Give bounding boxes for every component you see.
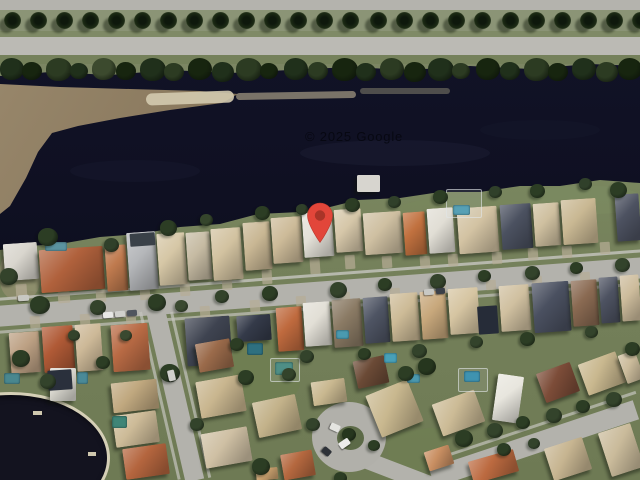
house-roof xyxy=(403,211,428,255)
house-roof xyxy=(242,221,272,271)
tree xyxy=(190,418,204,431)
palm-tree xyxy=(474,12,491,29)
house-roof xyxy=(614,193,640,242)
swimming-pool xyxy=(4,373,20,384)
tree xyxy=(470,336,483,348)
car xyxy=(424,289,434,296)
swimming-pool xyxy=(77,372,88,384)
driveway xyxy=(492,252,503,265)
palm-tree xyxy=(238,12,255,29)
highway-lower-lane xyxy=(0,37,640,56)
house-roof xyxy=(419,290,448,340)
house-roof xyxy=(363,211,404,256)
palm-tree xyxy=(448,12,465,29)
shore-tree xyxy=(164,63,184,81)
tree xyxy=(30,296,50,314)
house-roof xyxy=(499,203,533,250)
house-roof xyxy=(195,338,235,373)
shore-tree xyxy=(116,62,136,80)
tree xyxy=(516,416,530,429)
car xyxy=(103,312,113,319)
driveway xyxy=(382,256,393,269)
tree xyxy=(489,186,502,198)
tree xyxy=(433,190,448,204)
house-roof xyxy=(210,227,244,281)
driveway xyxy=(345,255,356,270)
driveway xyxy=(262,270,273,285)
tree xyxy=(238,370,254,385)
shore-tree xyxy=(618,58,640,80)
house-roof xyxy=(498,284,531,332)
marker-pin-shape xyxy=(308,203,333,243)
shore-tree xyxy=(596,62,618,82)
tree xyxy=(585,326,598,338)
lake-dock xyxy=(33,411,42,415)
tree xyxy=(104,238,119,252)
palm-tree xyxy=(212,12,229,29)
driveway xyxy=(600,242,611,255)
tree xyxy=(455,430,473,447)
car xyxy=(127,310,137,317)
tree xyxy=(96,356,110,369)
swimming-pool xyxy=(464,371,480,382)
shore-tree xyxy=(500,62,520,80)
tree xyxy=(418,358,436,375)
shore-tree xyxy=(212,62,234,82)
shore-tree xyxy=(260,63,278,79)
swimming-pool xyxy=(112,416,127,428)
car xyxy=(115,311,125,318)
shore-tree xyxy=(332,58,358,81)
palm-tree xyxy=(316,12,333,29)
tree xyxy=(576,400,590,413)
palm-tree xyxy=(134,12,151,29)
palm-tree xyxy=(56,12,73,29)
driveway xyxy=(528,248,539,261)
palm-tree xyxy=(82,12,99,29)
tree xyxy=(525,266,540,280)
car xyxy=(436,288,445,295)
house-roof xyxy=(531,281,571,333)
tree xyxy=(368,440,380,451)
tree xyxy=(262,286,278,301)
palm-tree xyxy=(606,12,623,29)
house-roof xyxy=(275,306,304,352)
tree xyxy=(330,282,347,298)
driveway xyxy=(562,246,573,259)
location-marker-icon[interactable] xyxy=(306,202,334,244)
palm-tree xyxy=(554,12,571,29)
shore-tree xyxy=(236,58,262,81)
tree xyxy=(200,214,213,226)
palm-tree xyxy=(342,12,359,29)
driveway xyxy=(448,254,459,267)
shore-tree xyxy=(548,63,568,81)
shore-tree xyxy=(476,58,500,80)
palm-tree xyxy=(264,12,281,29)
tree xyxy=(40,374,56,389)
shore-tree xyxy=(452,63,470,79)
tree xyxy=(175,300,188,312)
house-roof xyxy=(156,232,188,286)
house-roof xyxy=(619,274,640,321)
tree xyxy=(255,206,270,220)
house-roof xyxy=(447,287,480,335)
palm-tree xyxy=(186,12,203,29)
palm-tree xyxy=(160,12,177,29)
pool-screen-enclosure xyxy=(130,232,156,247)
tree xyxy=(148,294,166,311)
palm-tree xyxy=(580,12,597,29)
house-roof xyxy=(334,208,364,253)
tree xyxy=(546,408,562,423)
tree xyxy=(570,262,583,274)
driveway xyxy=(58,292,71,304)
tree xyxy=(38,228,58,246)
palm-tree xyxy=(396,12,413,29)
house-roof xyxy=(111,379,160,414)
tree xyxy=(579,178,592,190)
tree xyxy=(487,423,503,438)
palm-tree xyxy=(30,12,47,29)
driveway xyxy=(30,316,41,329)
house-roof xyxy=(110,323,150,372)
shore-tree xyxy=(284,58,308,80)
house-roof xyxy=(570,279,599,327)
driveway xyxy=(309,258,320,275)
palm-tree xyxy=(108,12,125,29)
shore-tree xyxy=(188,58,212,80)
palm-tree xyxy=(528,12,545,29)
house-roof xyxy=(331,298,363,348)
house-roof xyxy=(39,246,106,293)
palm-tree xyxy=(370,12,387,29)
water-highlight xyxy=(480,120,600,140)
palm-tree xyxy=(4,12,21,29)
house-roof xyxy=(270,216,303,264)
house-roof xyxy=(302,301,332,347)
tree xyxy=(610,182,627,198)
tree xyxy=(398,366,414,381)
tree xyxy=(160,220,177,236)
swimming-pool xyxy=(247,343,263,355)
pool-screen-enclosure xyxy=(477,305,499,334)
tree xyxy=(378,278,392,291)
shore-tree xyxy=(140,58,166,81)
shore-tree xyxy=(572,58,596,80)
tree xyxy=(230,338,244,351)
tree xyxy=(68,330,80,341)
shore-tree xyxy=(46,58,72,81)
shore-tree xyxy=(380,58,404,80)
lake-dock xyxy=(88,452,96,456)
tree xyxy=(252,458,270,475)
tree xyxy=(334,472,347,480)
house-roof xyxy=(122,443,170,480)
shore-tree xyxy=(92,58,116,80)
tree xyxy=(306,418,320,431)
tree xyxy=(215,290,229,303)
house-roof xyxy=(185,231,212,281)
water-highlight xyxy=(70,160,200,182)
sand-bar xyxy=(360,88,450,94)
house-roof xyxy=(280,449,316,480)
tree xyxy=(388,196,401,208)
shore-tree xyxy=(70,63,88,79)
house-roof xyxy=(560,198,598,245)
tree xyxy=(12,350,30,367)
shore-tree xyxy=(428,58,454,81)
tree xyxy=(530,184,545,198)
driveway xyxy=(250,300,261,313)
shore-tree xyxy=(308,62,328,80)
tree xyxy=(615,258,630,272)
tree xyxy=(606,392,622,407)
car xyxy=(18,295,29,302)
palm-tree xyxy=(422,12,439,29)
swimming-pool xyxy=(453,205,470,215)
house-roof xyxy=(310,378,347,406)
driveway xyxy=(420,256,431,269)
map-attribution: © 2025 Google xyxy=(305,129,403,144)
tree xyxy=(520,332,535,346)
tree xyxy=(282,368,296,381)
house-roof xyxy=(362,296,390,344)
map-canvas[interactable]: © 2025 Google xyxy=(0,0,640,480)
shore-tree xyxy=(404,62,426,82)
marker-pin-dot xyxy=(315,210,325,220)
swimming-pool xyxy=(384,353,397,363)
tree xyxy=(358,348,371,360)
house-roof xyxy=(598,276,620,323)
tree xyxy=(625,342,640,356)
shore-tree xyxy=(22,62,42,80)
shore-tree xyxy=(0,58,24,80)
house-roof xyxy=(236,314,272,342)
palm-tree xyxy=(290,12,307,29)
tree xyxy=(528,438,540,449)
palm-tree xyxy=(502,12,519,29)
tree xyxy=(412,344,427,358)
tree xyxy=(497,443,511,456)
house-roof xyxy=(389,292,420,342)
swimming-pool xyxy=(336,330,349,339)
shore-tree xyxy=(356,63,376,81)
tree xyxy=(478,270,491,282)
tree xyxy=(120,330,132,341)
house-roof xyxy=(533,202,562,247)
tree xyxy=(0,268,18,285)
tree xyxy=(345,198,360,212)
boat-dock xyxy=(357,175,380,192)
shore-tree xyxy=(524,58,550,81)
tree xyxy=(300,350,314,363)
